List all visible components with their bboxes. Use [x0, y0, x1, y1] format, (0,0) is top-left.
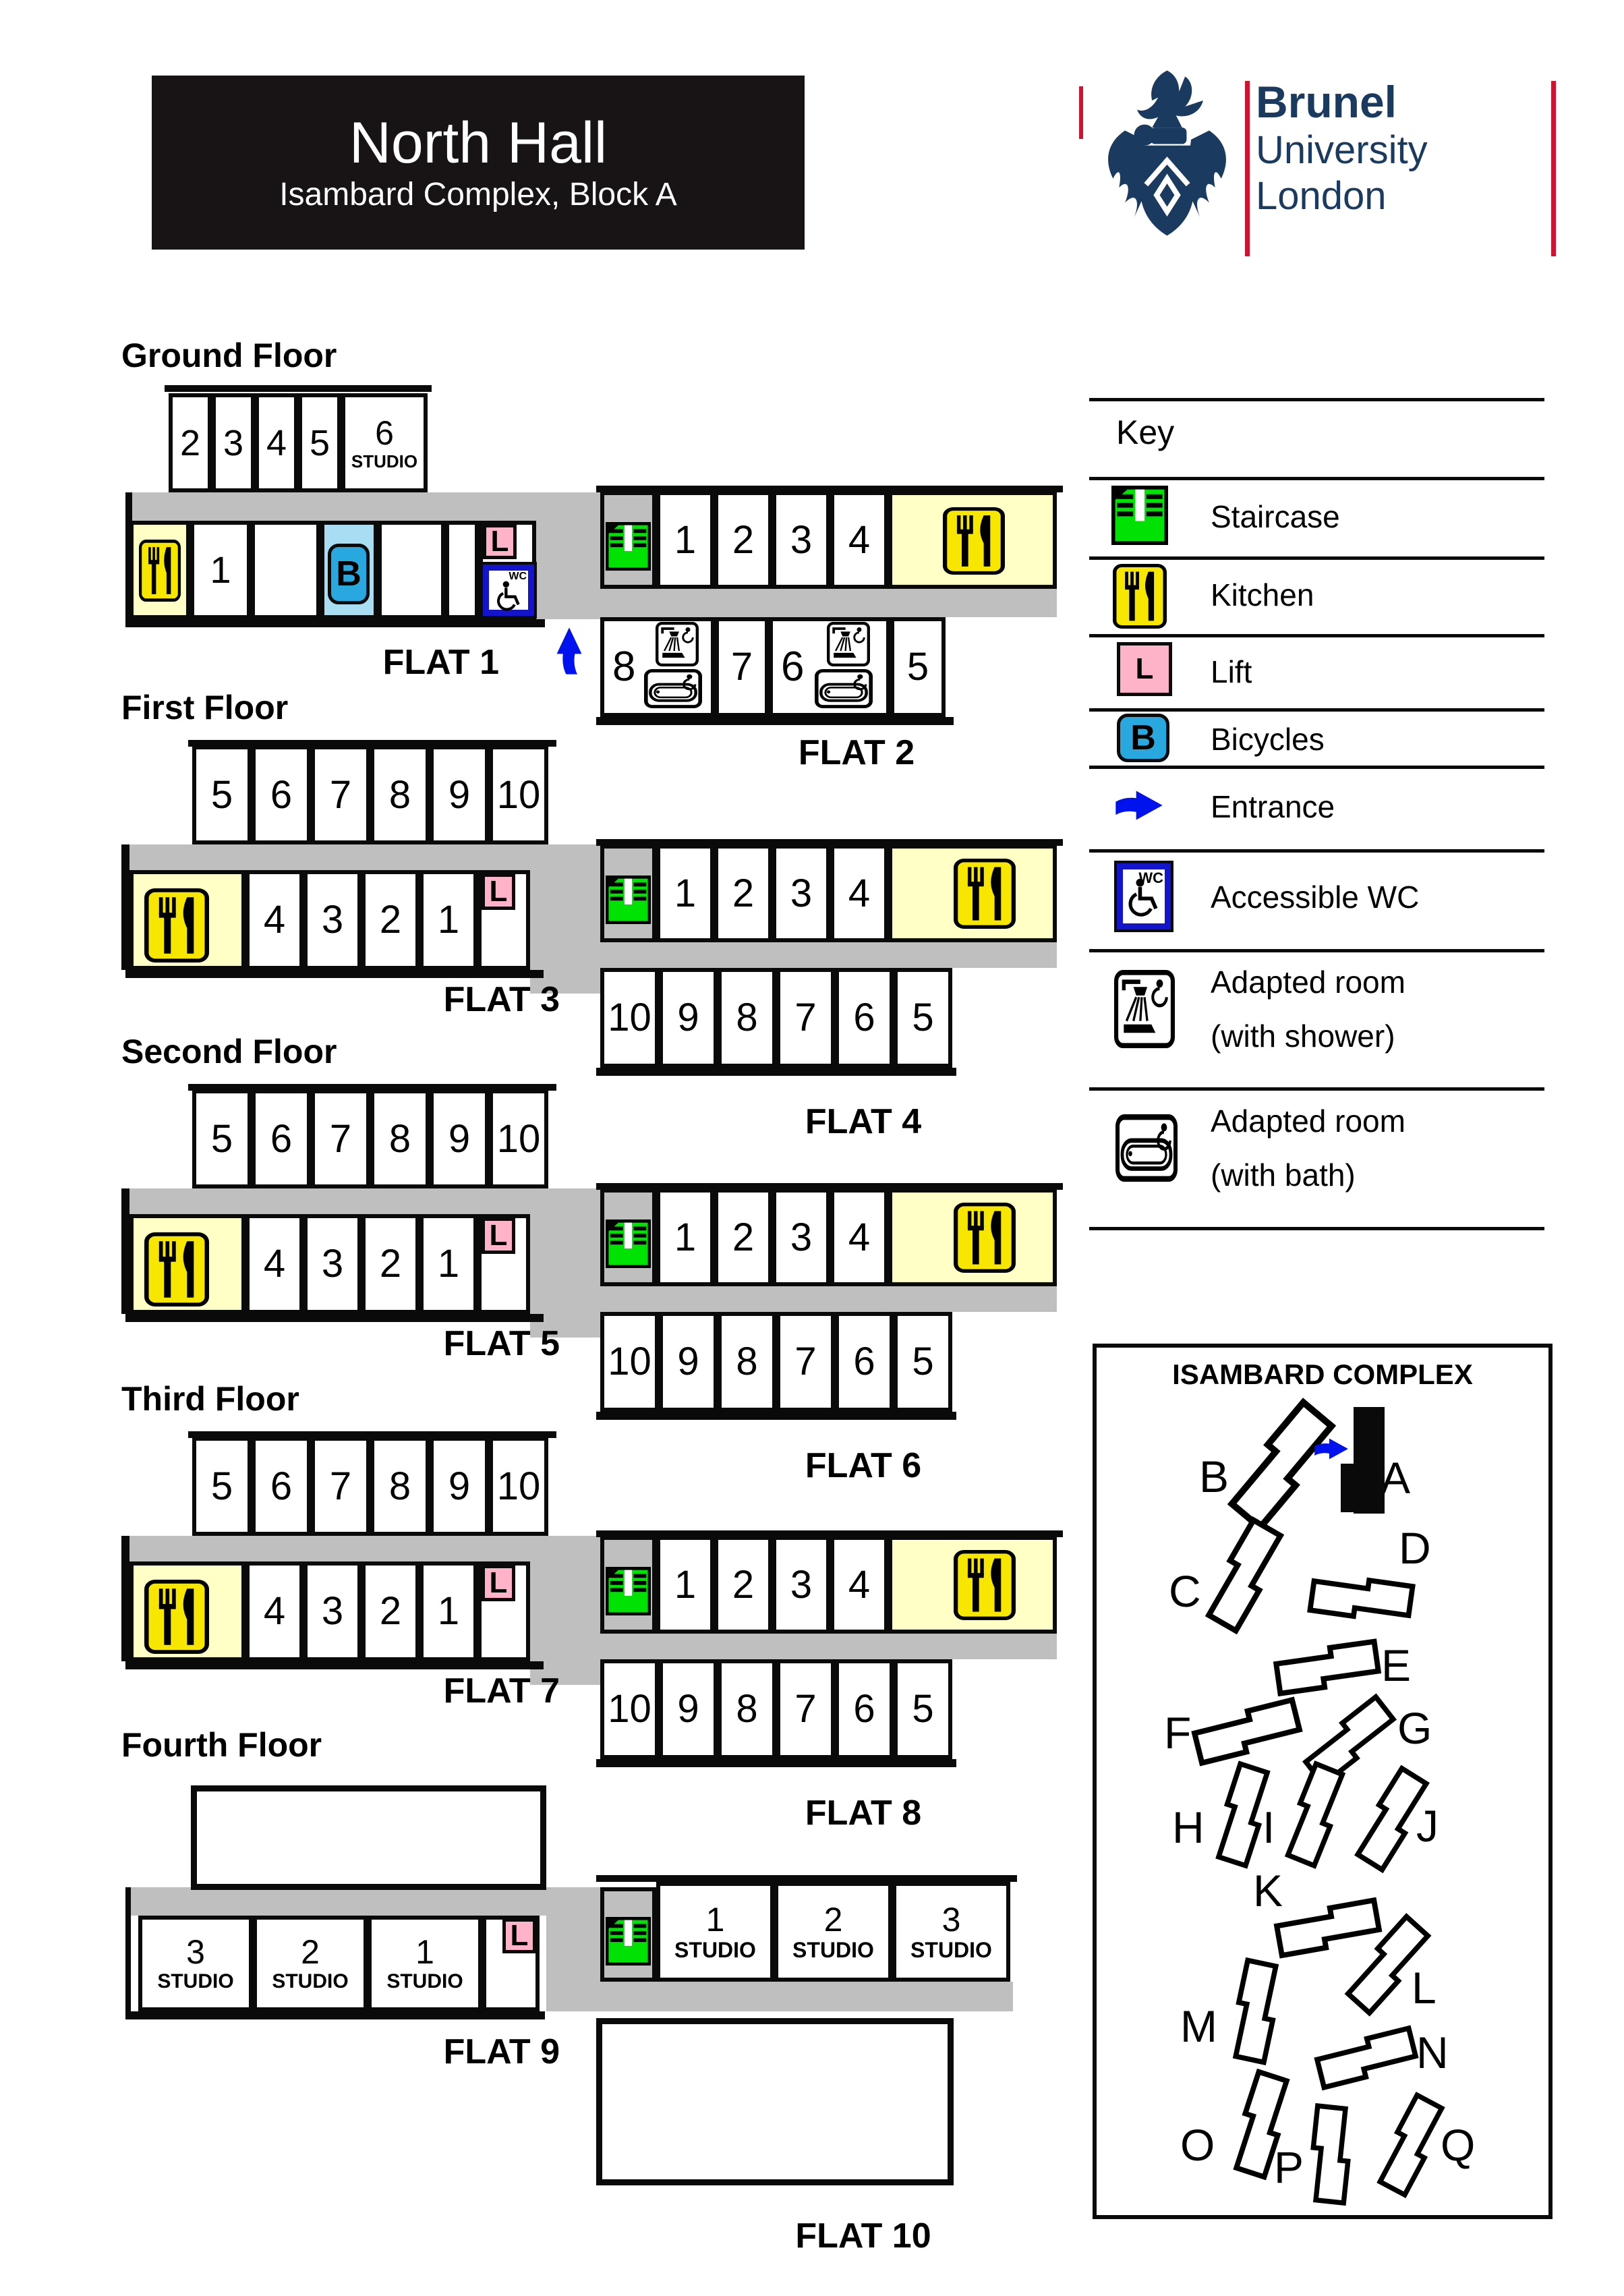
room-number: 4 [848, 521, 870, 560]
room-cell: 4 [830, 491, 888, 589]
room-cell [445, 521, 479, 619]
room-cell: 2 [361, 1214, 419, 1314]
room-number: 3 [322, 900, 343, 940]
flat-label: FLAT 6 [728, 1445, 998, 1486]
map-block-label: L [1412, 1965, 1466, 2014]
flat-label: FLAT 1 [297, 642, 499, 683]
studio-room-cell: 2STUDIO [253, 1916, 368, 2011]
wall [125, 1314, 544, 1322]
map-block-letter: L [1412, 1963, 1437, 2013]
room-number: 2 [732, 521, 754, 560]
room-cell: 4 [245, 1214, 303, 1314]
room-number: 1 [674, 521, 696, 560]
page-title: North Hall [349, 114, 607, 172]
room-number: 8 [736, 1342, 757, 1381]
staircase-icon [606, 876, 651, 924]
room-cell: 9 [430, 1437, 489, 1536]
room-cell: 5 [192, 745, 252, 844]
room-cell: 2 [714, 1188, 772, 1286]
flat-label-text: FLAT 1 [383, 643, 499, 682]
room-number: 9 [448, 776, 470, 815]
wall [121, 1188, 129, 1314]
room-number: 2 [380, 1592, 401, 1631]
corridor [548, 942, 1057, 968]
map-block-label: H [1172, 1805, 1226, 1854]
map-block-letter: Q [1441, 2120, 1475, 2170]
lift-glyph: L [490, 1219, 508, 1253]
room-cell: 8 [718, 1312, 776, 1412]
room-number: 9 [448, 1120, 470, 1159]
room-cell: 5 [894, 1659, 952, 1759]
key-label-accessible-wc: Accessible WC [1211, 881, 1419, 913]
adapted-shower-icon [827, 622, 870, 666]
lift-icon: L [482, 1217, 515, 1254]
room-cell: 6 [835, 1659, 894, 1759]
room-number: 7 [731, 648, 753, 687]
room-number: 1 [438, 900, 459, 940]
studio-room-cell: 3STUDIO [138, 1916, 253, 2011]
key-divider [1089, 634, 1544, 637]
staircase-icon [606, 1219, 651, 1268]
flat-label-text: FLAT 8 [805, 1793, 921, 1833]
flat-label: FLAT 7 [357, 1671, 560, 1711]
flat-label: FLAT 2 [722, 733, 991, 773]
room-cell: 3 [772, 1536, 830, 1634]
room-cell: 8 [718, 1659, 776, 1759]
room-cell: 4 [245, 870, 303, 970]
room-cell: 9 [659, 1312, 718, 1412]
room-number: 5 [211, 776, 233, 815]
room-number: 5 [310, 425, 330, 461]
floor-label: Fourth Floor [121, 1725, 322, 1764]
room-number: 8 [736, 1690, 757, 1729]
room-number: 3 [790, 874, 812, 913]
room-number: 4 [264, 1244, 285, 1284]
room-number: 6 [853, 998, 875, 1037]
room-cell: 7 [776, 1659, 835, 1759]
room-number: 6 [853, 1342, 875, 1381]
studio-label: STUDIO [792, 1939, 874, 1961]
key-divider [1089, 1087, 1544, 1091]
entrance-arrow-icon [553, 625, 585, 677]
map-block-letter: O [1180, 2120, 1215, 2170]
room-number: 6 [853, 1690, 875, 1729]
wall [165, 385, 432, 392]
bicycles-glyph: B [1130, 718, 1156, 758]
lift-icon: L [482, 873, 515, 910]
room-cell: 8 [718, 968, 776, 1068]
logo-line-1: Brunel [1256, 80, 1428, 124]
room-cell: 3 [772, 1188, 830, 1286]
room-number: 4 [848, 874, 870, 913]
room-cell: 9 [659, 1659, 718, 1759]
room-number: 9 [677, 998, 699, 1037]
room-cell: 7 [715, 617, 769, 717]
page: North Hall Isambard Complex, Block A Bru… [0, 0, 1624, 2296]
room-number: 10 [497, 776, 541, 815]
room-cell: 5 [298, 393, 341, 492]
room-cell: 2 [169, 393, 212, 492]
room-number: 4 [848, 1566, 870, 1605]
logo-red-bar-left [1245, 81, 1250, 256]
room-number: 4 [264, 900, 285, 940]
room-cell: 4 [245, 1561, 303, 1661]
room-cell: 7 [311, 1437, 370, 1536]
logo-red-bar-right [1551, 81, 1556, 256]
room-cell: 3 [303, 1214, 361, 1314]
room-number: 2 [380, 1244, 401, 1284]
flat-label: FLAT 5 [357, 1323, 560, 1364]
wall [125, 1661, 544, 1669]
studio-label: STUDIO [157, 1972, 233, 1992]
room-number: 10 [497, 1467, 541, 1506]
room-cell: 6 [835, 1312, 894, 1412]
flat-label: FLAT 3 [357, 979, 560, 1020]
room-number: 3 [322, 1244, 343, 1284]
lift-glyph: L [490, 875, 508, 909]
corridor [546, 1887, 600, 2011]
room-number: 1 [438, 1592, 459, 1631]
map-block-letter: M [1180, 2001, 1217, 2051]
lift-glyph: L [490, 1566, 508, 1600]
logo-text: Brunel University London [1256, 80, 1428, 216]
map-block-letter: B [1199, 1452, 1229, 1501]
room-cell: 10 [600, 968, 659, 1068]
room-cell: 1 [656, 844, 714, 942]
key-divider [1089, 1227, 1544, 1230]
room-cell: 5 [894, 968, 952, 1068]
wall [125, 2011, 545, 2019]
room-number: 3 [186, 1935, 205, 1969]
key-divider [1089, 766, 1544, 769]
key-label-adapted-shower: Adapted room [1211, 966, 1405, 998]
key-divider [1089, 949, 1544, 952]
room-cell: 1 [656, 1536, 714, 1634]
lift-icon: L [502, 1918, 536, 1953]
flat-label: FLAT 8 [728, 1793, 998, 1833]
room-number: 5 [912, 1690, 933, 1729]
room-cell: 9 [430, 745, 489, 844]
corridor [548, 1286, 1057, 1312]
room-cell: 8 [370, 745, 430, 844]
studio-room-cell: 6STUDIO [341, 393, 428, 492]
room-number: 1 [415, 1935, 434, 1969]
studio-room-cell: 1STUDIO [656, 1882, 774, 1982]
room-number: 7 [794, 998, 816, 1037]
room-cell: 2 [361, 870, 419, 970]
map-block-letter: J [1416, 1801, 1439, 1851]
flat-label-text: FLAT 5 [444, 1324, 560, 1363]
studio-label: STUDIO [674, 1939, 756, 1961]
staircase-icon [606, 1917, 651, 1965]
map-block-letter: D [1399, 1523, 1431, 1573]
floor-label-text: Ground Floor [121, 337, 337, 374]
wall [121, 1536, 129, 1661]
map-block-label: K [1253, 1868, 1307, 1917]
room-cell: 4 [830, 1188, 888, 1286]
room-number: 2 [380, 900, 401, 940]
room-number: 3 [322, 1592, 343, 1631]
corridor [129, 492, 600, 521]
corridor [600, 1982, 1013, 2011]
floor-label: First Floor [121, 688, 288, 727]
room-cell: 5 [894, 1312, 952, 1412]
wall [596, 1412, 956, 1420]
room-cell: 6 [835, 968, 894, 1068]
lift-glyph: L [511, 1919, 529, 1953]
accessible-wc-icon: WC [480, 562, 537, 619]
room-number: 3 [790, 1218, 812, 1257]
wall [596, 1068, 956, 1076]
key-label-adapted-shower-2: (with shower) [1211, 1020, 1395, 1052]
floor-label-text: First Floor [121, 689, 288, 726]
room-cell [251, 521, 320, 619]
room-cell: 3 [212, 393, 255, 492]
key-divider [1089, 556, 1544, 560]
flat-label-text: FLAT 7 [444, 1671, 560, 1711]
kitchen-icon [954, 859, 1016, 929]
room-number: 5 [912, 998, 933, 1037]
room-cell: 7 [311, 1089, 370, 1188]
map-block-letter: K [1253, 1866, 1283, 1916]
room-number: 10 [608, 1342, 651, 1381]
entrance-arrow-icon [1312, 1435, 1350, 1462]
room-number: 6 [375, 416, 394, 450]
room-cell: 8 [370, 1437, 430, 1536]
map-block-label: D [1399, 1526, 1453, 1574]
room-cell: 1 [190, 521, 251, 619]
room-number: 7 [794, 1690, 816, 1729]
room-number: 2 [824, 1903, 843, 1936]
lift-glyph: L [1136, 652, 1154, 686]
key-label-adapted-bath: Adapted room [1211, 1105, 1405, 1137]
kitchen-icon [144, 1232, 209, 1307]
room-cell: 3 [303, 1561, 361, 1661]
room-cell: 6 [252, 1437, 311, 1536]
map-block-label: B [1199, 1454, 1253, 1503]
room-number: 8 [389, 776, 411, 815]
room-cell: 10 [600, 1659, 659, 1759]
room-number: 1 [674, 1218, 696, 1257]
key-label-lift: Lift [1211, 656, 1252, 688]
room-number: 8 [389, 1467, 411, 1506]
map-block-label: A [1381, 1456, 1434, 1504]
adapted-shower-icon [656, 622, 699, 666]
room-cell: 1 [656, 1188, 714, 1286]
floor-label-text: Fourth Floor [121, 1726, 322, 1764]
kitchen-icon [1113, 564, 1167, 629]
wall [596, 717, 954, 725]
studio-room-cell: 3STUDIO [892, 1882, 1010, 1982]
key-label-bicycles: Bicycles [1211, 723, 1325, 755]
map-block-label: I [1263, 1805, 1316, 1854]
key-label-staircase: Staircase [1211, 500, 1340, 533]
room-number: 5 [211, 1120, 233, 1159]
accessible-wc-icon: WC [1114, 861, 1173, 932]
room-cell: 3 [772, 491, 830, 589]
empty-room [596, 2018, 954, 2185]
kitchen-icon [144, 888, 209, 963]
room-cell: 8 [370, 1089, 430, 1188]
adapted-shower-icon [1114, 970, 1175, 1048]
room-cell: 1 [419, 870, 477, 970]
room-number: 3 [223, 425, 243, 461]
staircase-icon [606, 1567, 651, 1615]
kitchen-icon [139, 540, 181, 602]
room-cell: 7 [776, 1312, 835, 1412]
room-number: 7 [330, 776, 351, 815]
room-cell: 3 [303, 870, 361, 970]
adapted-bath-icon [644, 669, 702, 708]
corridor [548, 589, 1057, 617]
logo-red-tick [1079, 86, 1083, 139]
room-number: 5 [907, 648, 929, 687]
room-number: 7 [330, 1120, 351, 1159]
room-cell: 2 [714, 844, 772, 942]
bicycles-glyph: B [336, 554, 361, 594]
room-number: 1 [674, 1566, 696, 1605]
room-cell: 2 [714, 1536, 772, 1634]
empty-room [191, 1785, 546, 1890]
room-number: 9 [677, 1342, 699, 1381]
room-number: 2 [180, 425, 200, 461]
map-block-label: F [1164, 1711, 1218, 1759]
room-cell: 2 [714, 491, 772, 589]
lift-icon: L [482, 1565, 515, 1601]
flat-label-text: FLAT 6 [805, 1446, 921, 1485]
title-block: North Hall Isambard Complex, Block A [152, 76, 805, 250]
kitchen-icon [954, 1203, 1016, 1273]
corridor [548, 1634, 1057, 1659]
room-number: 10 [608, 1690, 651, 1729]
key-heading: Key [1116, 413, 1174, 452]
studio-room-cell: 1STUDIO [368, 1916, 482, 2011]
entrance-icon [1113, 786, 1165, 824]
floor-label-text: Third Floor [121, 1380, 299, 1418]
room-number: 8 [389, 1120, 411, 1159]
lift-glyph: L [491, 525, 509, 558]
room-number: 2 [732, 874, 754, 913]
studio-label: STUDIO [910, 1939, 992, 1961]
lift-icon: L [483, 524, 517, 559]
room-cell: 10 [489, 1437, 548, 1536]
room-number: 10 [497, 1120, 541, 1159]
room-number: 8 [612, 646, 635, 688]
map-block-label: C [1169, 1569, 1223, 1617]
map-block-letter: P [1274, 2142, 1304, 2192]
map-block-label: G [1397, 1706, 1451, 1754]
room-number: 2 [301, 1935, 320, 1969]
kitchen-icon [144, 1580, 209, 1654]
map-block-label: E [1381, 1643, 1435, 1692]
map-block-label: N [1416, 2030, 1470, 2079]
wall [125, 619, 545, 627]
map-block-letter: I [1263, 1802, 1275, 1852]
page-subtitle: Isambard Complex, Block A [279, 179, 677, 211]
complex-map-title: ISAMBARD COMPLEX [1093, 1358, 1553, 1391]
map-block-label: Q [1441, 2123, 1495, 2171]
accessible-wc-panel: WC [1123, 869, 1165, 923]
key-divider [1089, 708, 1544, 712]
room-number: 1 [438, 1244, 459, 1284]
room-number: 9 [448, 1467, 470, 1506]
adapted-bath-icon [1115, 1114, 1178, 1182]
room-number: 6 [781, 646, 804, 688]
floor-label-text: Second Floor [121, 1033, 337, 1070]
room-number: 7 [330, 1467, 351, 1506]
floor-label: Second Floor [121, 1032, 337, 1071]
room-cell: 1 [656, 491, 714, 589]
room-number: 1 [674, 874, 696, 913]
wall [1341, 1464, 1370, 1512]
map-block-letter: H [1172, 1802, 1205, 1852]
room-cell: 7 [311, 745, 370, 844]
room-cell: 4 [255, 393, 298, 492]
room-cell: 5 [192, 1437, 252, 1536]
room-number: 9 [677, 1690, 699, 1729]
bicycles-icon: B [328, 544, 370, 604]
room-number: 1 [706, 1903, 725, 1936]
flat-label: FLAT 10 [728, 2216, 998, 2256]
wall [596, 1875, 1017, 1882]
room-number: 2 [732, 1218, 754, 1257]
room-number: 4 [848, 1218, 870, 1257]
flat-label-text: FLAT 9 [444, 2032, 560, 2071]
room-number: 8 [736, 998, 757, 1037]
room-cell: 9 [430, 1089, 489, 1188]
map-block-label: J [1416, 1804, 1470, 1852]
floor-label: Third Floor [121, 1379, 299, 1418]
map-block-label: O [1180, 2123, 1234, 2171]
room-cell: 10 [489, 1089, 548, 1188]
accessible-wc-panel: WC [489, 571, 528, 610]
room-cell: 7 [776, 968, 835, 1068]
map-block-letter: C [1169, 1566, 1201, 1616]
room-cell: 2 [361, 1561, 419, 1661]
room-cell: 10 [600, 1312, 659, 1412]
room-number: 6 [270, 1120, 292, 1159]
room-number: 10 [608, 998, 651, 1037]
key-divider [1089, 477, 1544, 480]
room-number: 3 [790, 1566, 812, 1605]
room-cell: 9 [659, 968, 718, 1068]
wall [596, 1759, 956, 1767]
key-divider [1089, 398, 1544, 401]
room-number: 6 [270, 1467, 292, 1506]
room-cell: 6 [252, 1089, 311, 1188]
room-cell [378, 521, 445, 619]
room-cell: 5 [192, 1089, 252, 1188]
lift-icon: L [1117, 642, 1172, 696]
room-cell: 4 [830, 844, 888, 942]
key-divider [1089, 849, 1544, 853]
room-cell: 3 [772, 844, 830, 942]
logo-line-2: University [1256, 131, 1428, 170]
staircase-icon [606, 522, 651, 571]
key-label-kitchen: Kitchen [1211, 579, 1314, 611]
staircase-icon [1111, 486, 1168, 545]
room-cell: 4 [830, 1536, 888, 1634]
flat-label: FLAT 9 [357, 2032, 560, 2072]
room-cell: 6 [252, 745, 311, 844]
wall [125, 970, 544, 978]
map-block-letter: G [1397, 1703, 1432, 1753]
adapted-bath-icon [815, 669, 873, 708]
room-number: 5 [211, 1467, 233, 1506]
map-block-letter: F [1164, 1708, 1191, 1758]
wall [125, 1887, 131, 2011]
room-number: 7 [794, 1342, 816, 1381]
